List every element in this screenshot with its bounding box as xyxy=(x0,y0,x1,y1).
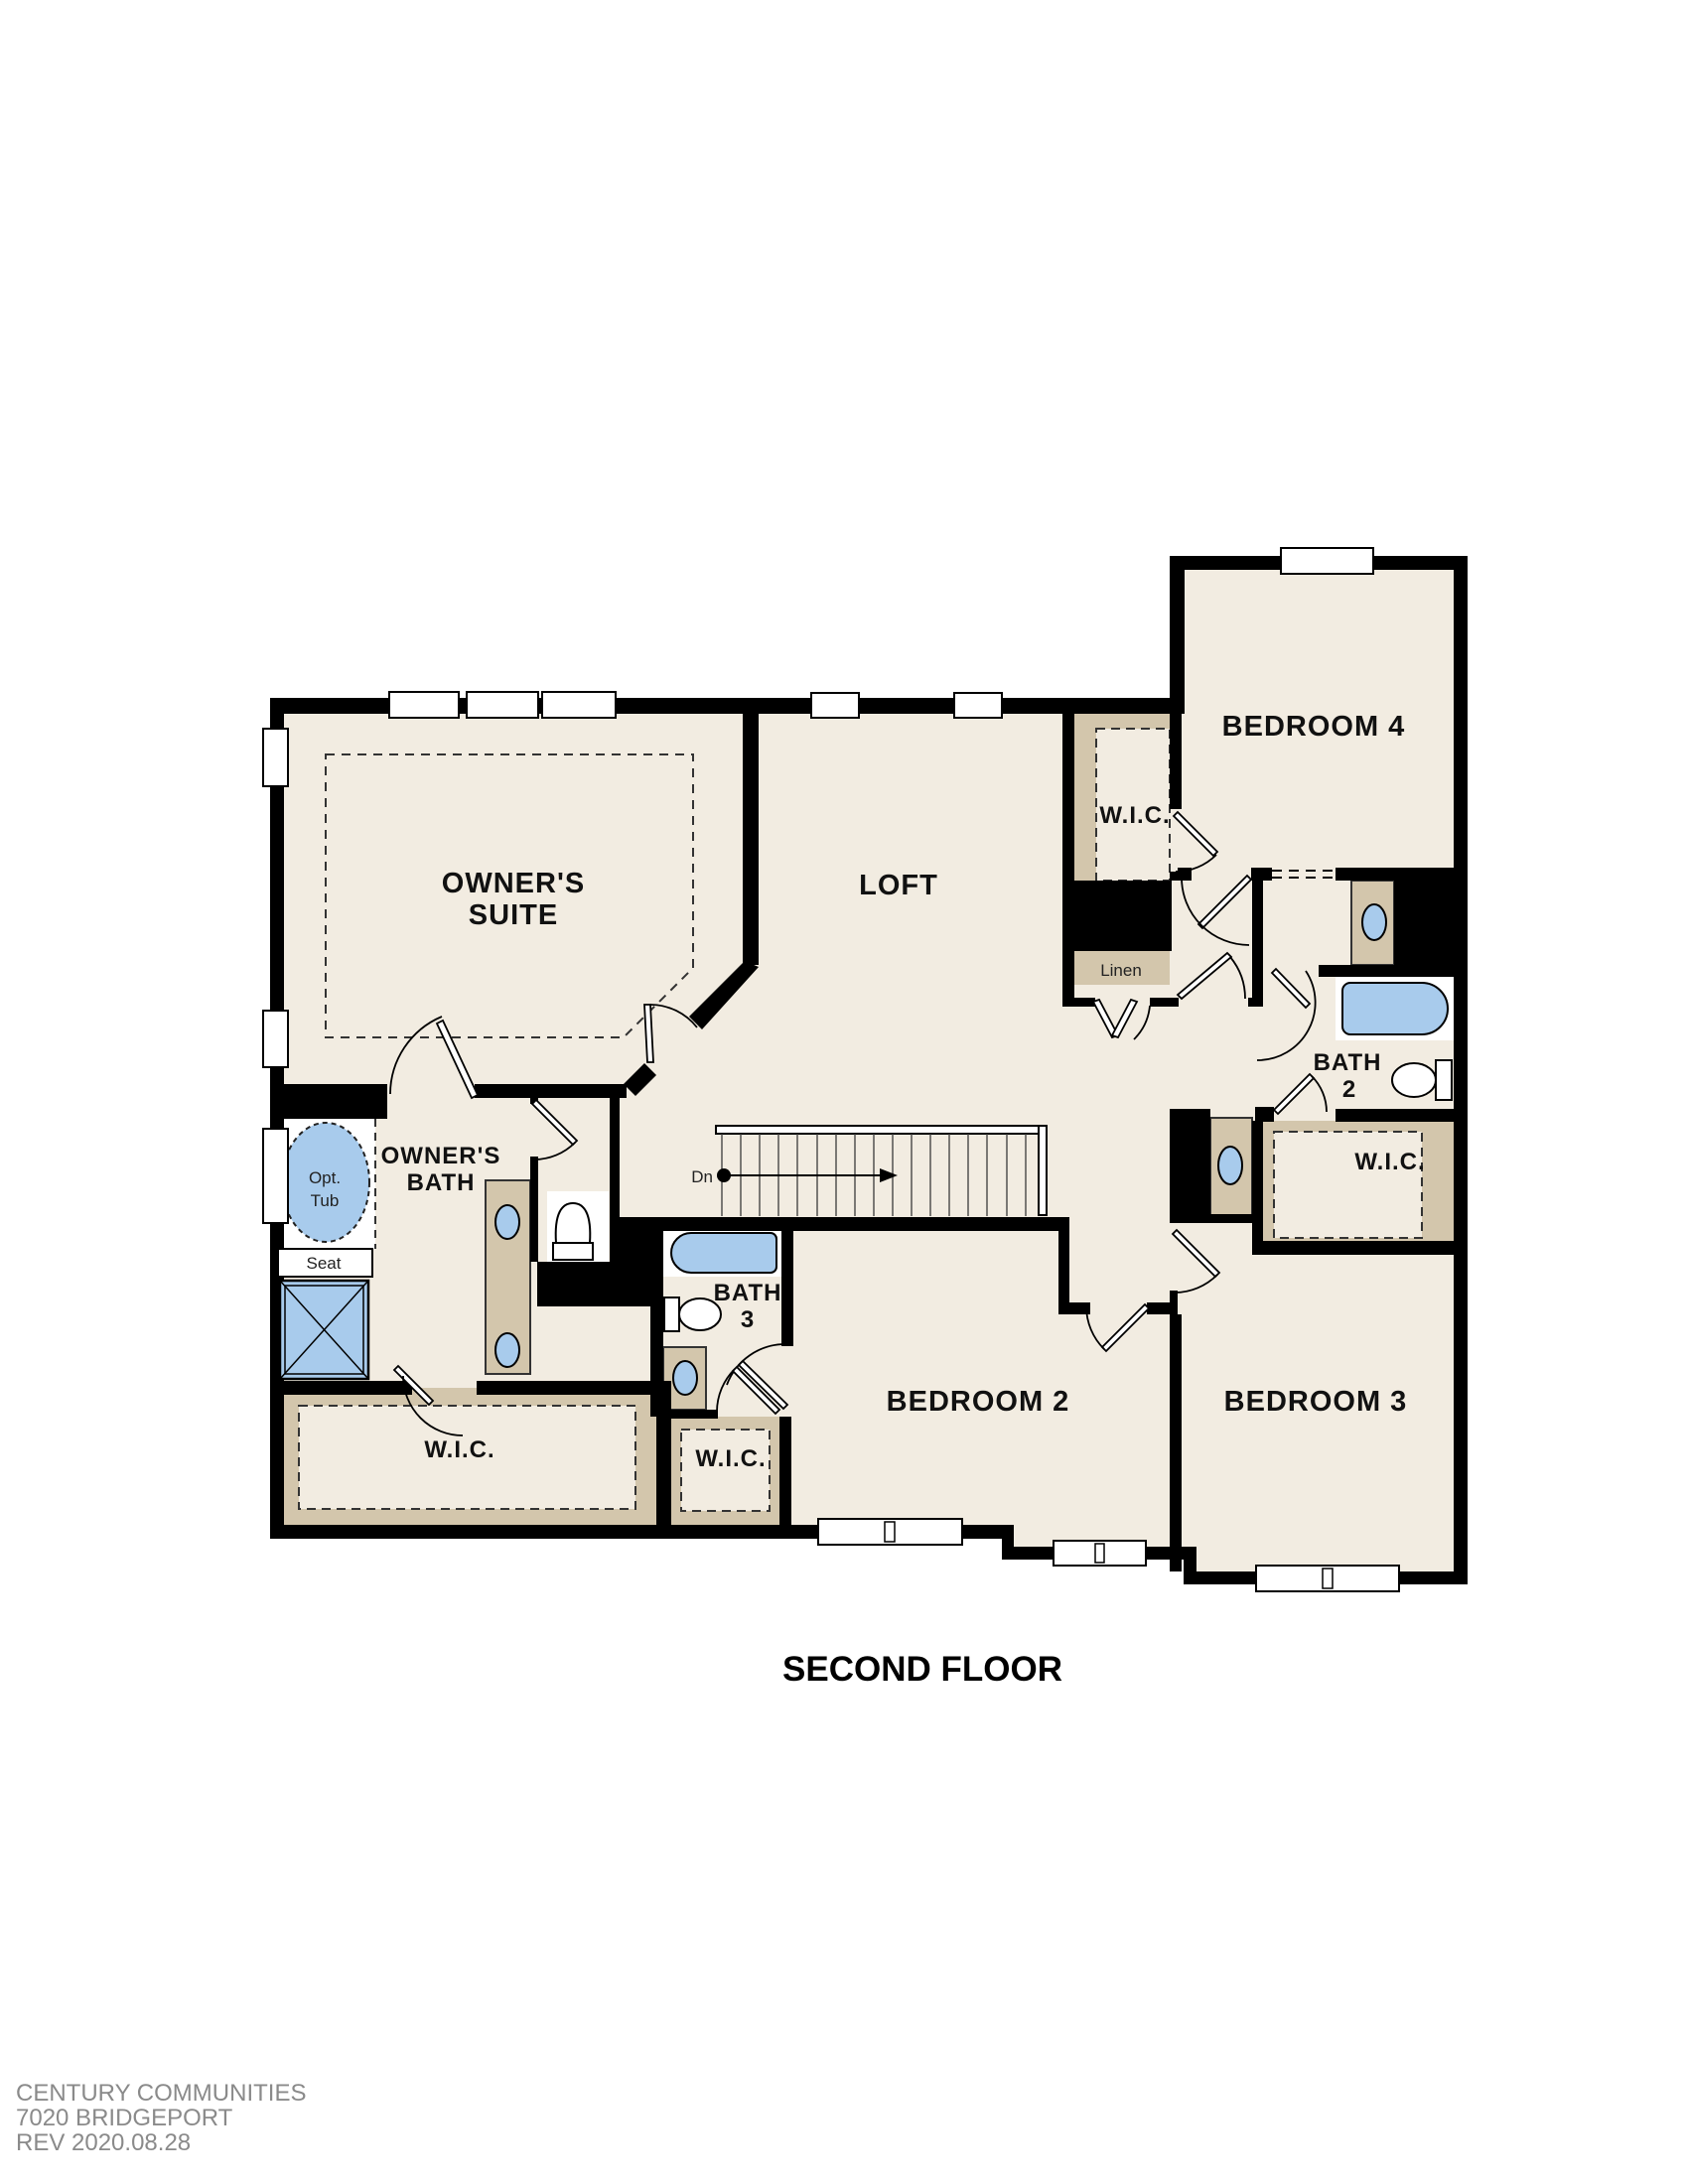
svg-text:BEDROOM 4: BEDROOM 4 xyxy=(1222,711,1406,743)
svg-text:W.I.C.: W.I.C. xyxy=(424,1436,494,1463)
svg-text:CENTURY COMMUNITIES: CENTURY COMMUNITIES xyxy=(16,2080,306,2107)
svg-text:Tub: Tub xyxy=(311,1191,340,1210)
svg-text:BATH: BATH xyxy=(407,1169,476,1196)
svg-text:BATH: BATH xyxy=(1314,1049,1382,1076)
svg-text:SUITE: SUITE xyxy=(469,899,558,931)
svg-text:3: 3 xyxy=(741,1306,755,1333)
svg-text:OWNER'S: OWNER'S xyxy=(381,1143,501,1169)
svg-text:2: 2 xyxy=(1342,1076,1356,1103)
svg-text:W.I.C.: W.I.C. xyxy=(1354,1149,1425,1175)
svg-text:OWNER'S: OWNER'S xyxy=(442,868,585,899)
svg-text:SECOND FLOOR: SECOND FLOOR xyxy=(782,1650,1062,1689)
svg-text:Opt.: Opt. xyxy=(309,1168,341,1187)
svg-text:Dn: Dn xyxy=(691,1167,713,1186)
svg-text:W.I.C.: W.I.C. xyxy=(1099,802,1170,829)
svg-text:LOFT: LOFT xyxy=(859,870,938,901)
svg-text:REV 2020.08.28: REV 2020.08.28 xyxy=(16,2129,191,2156)
svg-text:7020 BRIDGEPORT: 7020 BRIDGEPORT xyxy=(16,2105,233,2131)
svg-text:BEDROOM 2: BEDROOM 2 xyxy=(887,1386,1070,1418)
svg-text:W.I.C.: W.I.C. xyxy=(695,1445,766,1472)
svg-text:BATH: BATH xyxy=(714,1280,782,1306)
svg-text:BEDROOM 3: BEDROOM 3 xyxy=(1224,1386,1408,1418)
svg-text:Seat: Seat xyxy=(307,1254,342,1273)
svg-text:Linen: Linen xyxy=(1100,961,1142,980)
